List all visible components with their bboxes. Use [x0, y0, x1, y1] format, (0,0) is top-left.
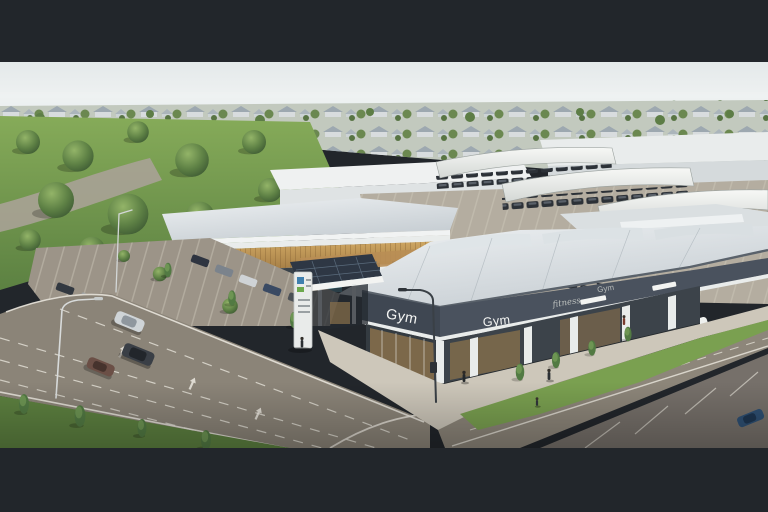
letterbox-top [0, 0, 768, 62]
letterbox-bottom [0, 448, 768, 512]
vignette [0, 382, 768, 448]
pedestrian [623, 315, 626, 325]
pedestrian [300, 337, 303, 348]
render-canvas: Gym Gym fitness Gym [0, 0, 768, 512]
aerial-photo: Gym Gym fitness Gym [0, 62, 768, 448]
aerial-render: Gym Gym fitness Gym [0, 62, 768, 448]
